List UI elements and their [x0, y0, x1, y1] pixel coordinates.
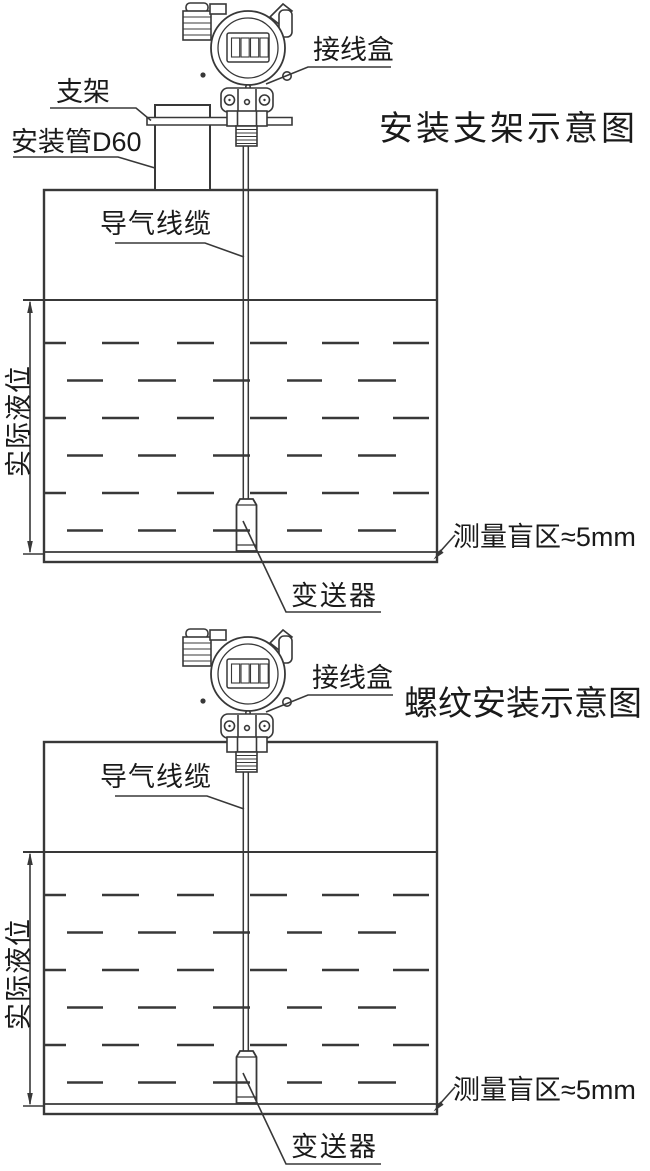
diagram1-title: 安装支架示意图 — [379, 112, 638, 146]
transmitter-label-2: 变送器 — [291, 1134, 378, 1161]
transmitter-head-drawing2 — [183, 629, 292, 772]
diagram2-title: 螺纹安装示意图 — [404, 687, 642, 721]
blind-zone-label-1: 测量盲区≈5mm — [453, 524, 636, 551]
bracket-plate-drawing — [147, 118, 292, 126]
actual-level-label-2: 实际液位 — [6, 917, 34, 1031]
tank1-drawing — [23, 190, 455, 612]
diagram2-drawing — [23, 629, 455, 1164]
bracket-label: 支架 — [56, 79, 110, 106]
air-cable-line2 — [243, 772, 248, 1051]
junction-box-label-2: 接线盒 — [312, 665, 393, 692]
mounting-pipe-label: 安装管D60 — [11, 129, 142, 156]
installation-diagram-page: 安装支架示意图 接线盒 支架 安装管D60 导气线缆 实际液位 测量盲区≈5mm… — [0, 0, 650, 1171]
blind-zone-label-2: 测量盲区≈5mm — [453, 1077, 636, 1104]
air-cable-line1 — [243, 146, 248, 499]
transmitter-label-1: 变送器 — [291, 583, 378, 610]
actual-level-label-1: 实际液位 — [6, 364, 34, 478]
air-cable-label-2: 导气线缆 — [100, 764, 212, 791]
junction-box-label-1: 接线盒 — [313, 37, 394, 64]
tank2-drawing — [23, 742, 455, 1164]
air-cable-label-1: 导气线缆 — [100, 211, 212, 238]
